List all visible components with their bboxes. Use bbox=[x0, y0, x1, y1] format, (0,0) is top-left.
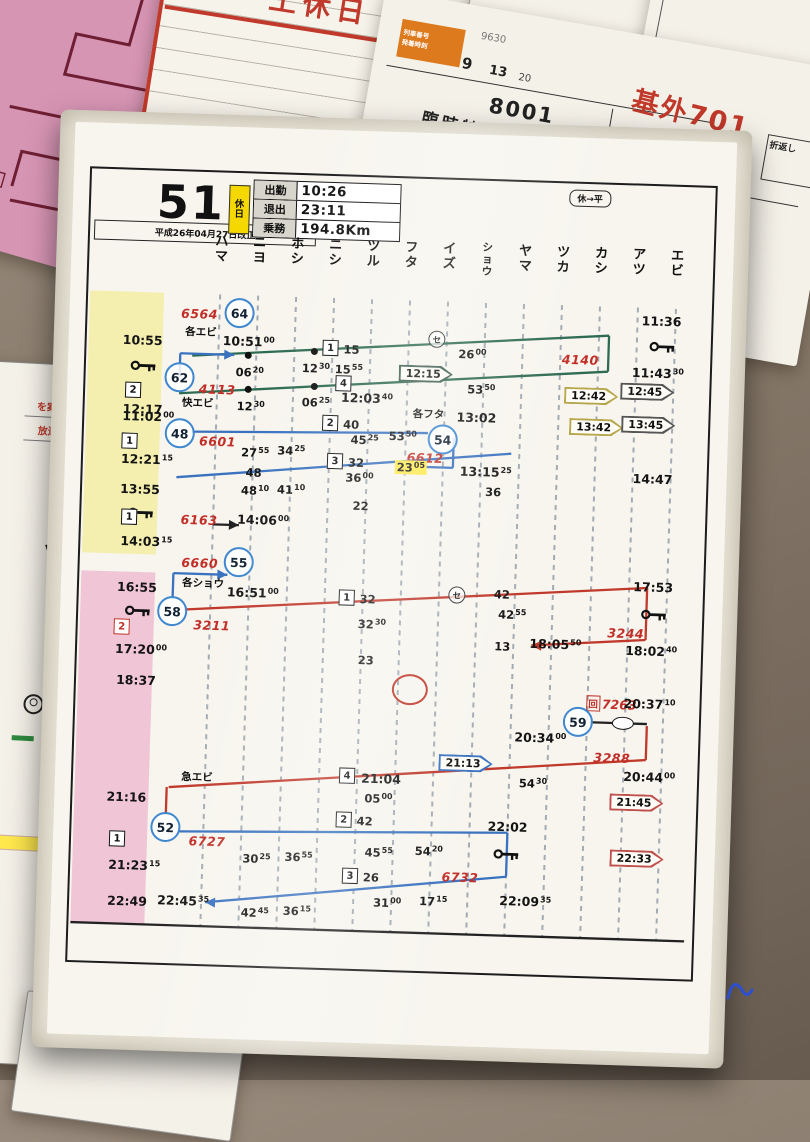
train-number-3211: 3211 bbox=[193, 617, 230, 633]
stop-time: 2600 bbox=[458, 347, 487, 362]
time-label: 12:2115 bbox=[121, 451, 173, 468]
key-icon bbox=[493, 847, 520, 863]
track-number-box-red: 2 bbox=[113, 618, 129, 634]
time-arrow-badge: 13:45 bbox=[621, 416, 676, 435]
track-number-box: 1 bbox=[109, 830, 125, 846]
time-label: 12:0340 bbox=[341, 390, 393, 407]
rinji-head-box: 列車番号 発着時刻 bbox=[396, 19, 466, 68]
rinji-small-no: 9630 bbox=[480, 31, 507, 46]
train-number-6732: 6732 bbox=[441, 869, 478, 885]
stop-time: 1230 bbox=[302, 361, 331, 376]
time-label: 11:4330 bbox=[632, 365, 684, 382]
time-label: 18:37 bbox=[116, 672, 156, 688]
stop-time: 3100 bbox=[373, 896, 402, 911]
stop-time: 22 bbox=[352, 499, 368, 513]
time-label: 12:17 bbox=[122, 401, 162, 417]
train-number-3244: 3244 bbox=[607, 625, 644, 641]
stop-time: 5430 bbox=[519, 776, 548, 791]
time-label: 18:0550 bbox=[529, 636, 581, 653]
stop-time: 42 bbox=[494, 587, 510, 601]
plastic-sleeve: 51 平成26年04月27日改正 休日 出勤 10:26 退出 23:11 乗務… bbox=[31, 109, 752, 1068]
stop-time: 5420 bbox=[414, 844, 443, 859]
stop-time: 36 bbox=[485, 485, 501, 499]
time-label: 22:02 bbox=[487, 819, 527, 835]
rinji-col-c: 20 bbox=[517, 72, 531, 85]
key-icon bbox=[649, 339, 676, 355]
time-label: 22:0935 bbox=[499, 893, 551, 910]
stop-time: 3655 bbox=[284, 850, 313, 865]
time-label: 13:1525 bbox=[460, 464, 512, 481]
train-number-6163: 6163 bbox=[180, 512, 217, 528]
train-number-6727: 6727 bbox=[188, 833, 225, 849]
time-label: 18:0240 bbox=[625, 643, 677, 660]
stop-time: 4255 bbox=[498, 607, 527, 622]
time-label: 20:3400 bbox=[514, 729, 566, 746]
stop-time: 13 bbox=[494, 639, 510, 653]
time-arrow-badge: 21:45 bbox=[609, 793, 664, 812]
stop-time: 5350 bbox=[389, 429, 418, 444]
train-number-6660: 6660 bbox=[181, 555, 218, 571]
track-number-box: 1 bbox=[121, 432, 137, 448]
stop-time: 5350 bbox=[467, 382, 496, 397]
stop-time: 32 bbox=[359, 592, 375, 606]
stop-time: 3615 bbox=[283, 904, 312, 919]
train-type-kaku-sho: 各ショウ bbox=[182, 575, 224, 591]
time-arrow-badge: 12:42 bbox=[564, 387, 619, 406]
track-number-box: 4 bbox=[339, 767, 355, 783]
stop-time: 42 bbox=[356, 814, 372, 828]
highlighted-time-2305: 2305 bbox=[395, 460, 428, 475]
stop-time: 15 bbox=[343, 342, 359, 356]
track-number-box: 1 bbox=[121, 508, 137, 524]
train-type-kyu-ebi: 急エビ bbox=[181, 769, 213, 785]
time-label: 14:0600 bbox=[237, 512, 289, 529]
train-type-kai-ebi: 快エビ bbox=[182, 395, 214, 411]
stop-time: 1230 bbox=[236, 399, 265, 414]
stop-time: 48 bbox=[245, 465, 261, 479]
stop-time: 4245 bbox=[240, 905, 269, 920]
track-number-box: 2 bbox=[125, 382, 141, 398]
time-arrow-badge: 21:13 bbox=[438, 754, 493, 773]
train-type-kaku-ebi: 各エビ bbox=[185, 324, 217, 340]
track-number-box: 1 bbox=[322, 340, 338, 356]
stop-time: 23 bbox=[358, 653, 374, 667]
time-label: 17:53 bbox=[633, 579, 673, 595]
stop-time: 26 bbox=[363, 870, 379, 884]
time-arrow-badge: 22:33 bbox=[609, 849, 664, 868]
time-label: 20:3710 bbox=[623, 696, 675, 713]
key-icon bbox=[130, 358, 157, 374]
time-label: 14:0315 bbox=[120, 533, 172, 550]
time-label: 22:4535 bbox=[157, 892, 209, 909]
stop-time: 4810 bbox=[241, 483, 270, 498]
stop-time: 3600 bbox=[345, 470, 374, 485]
stop-time: 0625 bbox=[302, 395, 331, 410]
train-number-6564: 6564 bbox=[181, 306, 218, 322]
time-label: 21:16 bbox=[106, 789, 146, 805]
train-number-6601: 6601 bbox=[199, 433, 236, 449]
train-type-kaku-futa: 各フタ bbox=[413, 406, 445, 422]
time-arrow-badge: 13:42 bbox=[569, 418, 624, 437]
rinji-note-box: 折返し bbox=[760, 134, 810, 189]
track-number-box: 2 bbox=[322, 415, 338, 431]
stop-time: 4555 bbox=[364, 845, 393, 860]
stop-time: 3230 bbox=[358, 617, 387, 632]
photo-of-train-duty-cards: { "bg_cards": { "dojitsu": {"title": "土休… bbox=[0, 0, 810, 1080]
track-number-box: 3 bbox=[342, 868, 358, 884]
track-number-box: 2 bbox=[335, 811, 351, 827]
time-label: 21:2315 bbox=[108, 857, 160, 874]
stop-time: 1715 bbox=[419, 894, 448, 909]
time-arrow-badge: 12:45 bbox=[620, 383, 675, 402]
stop-time: 2755 bbox=[241, 445, 270, 460]
time-label: 14:47 bbox=[632, 471, 672, 487]
time-label: 20:4400 bbox=[623, 769, 675, 786]
stop-time: 4525 bbox=[350, 433, 379, 448]
stop-time: 32 bbox=[348, 456, 364, 470]
time-label: 13:02 bbox=[456, 409, 496, 425]
train-number-3288: 3288 bbox=[593, 750, 630, 766]
time-label: 16:55 bbox=[117, 579, 157, 595]
left-card-circle-mark bbox=[23, 694, 44, 715]
stop-time: 40 bbox=[343, 417, 359, 431]
blue-pen-mark bbox=[722, 968, 756, 1008]
key-icon bbox=[641, 607, 668, 623]
time-label: 13:55 bbox=[120, 481, 160, 497]
train-number-4140: 4140 bbox=[562, 352, 599, 368]
key-icon bbox=[124, 603, 151, 619]
time-label: 22:49 bbox=[107, 893, 147, 909]
track-number-box: 3 bbox=[327, 453, 343, 469]
time-label: 16:5100 bbox=[227, 584, 279, 601]
time-label: 17:2000 bbox=[115, 641, 167, 658]
rinji-col-b: 13 bbox=[488, 63, 508, 81]
time-label: 11:36 bbox=[641, 313, 681, 329]
stop-time: 0620 bbox=[235, 365, 264, 380]
track-number-box: 1 bbox=[338, 589, 354, 605]
stop-time: 4110 bbox=[277, 482, 306, 497]
time-label: 10:5100 bbox=[223, 333, 275, 350]
time-label: 21:04 bbox=[361, 771, 401, 787]
left-card-green-mark bbox=[12, 735, 34, 741]
duty-schedule-card: 51 平成26年04月27日改正 休日 出勤 10:26 退出 23:11 乗務… bbox=[47, 122, 737, 1054]
rinji-col-a: 9 bbox=[460, 54, 473, 74]
stop-time: 0500 bbox=[364, 791, 393, 806]
time-label: 10:55 bbox=[123, 332, 163, 348]
dojitsu-title: 土休日 bbox=[266, 0, 373, 33]
time-arrow-badge: 12:15 bbox=[399, 365, 454, 384]
stop-time: 3425 bbox=[277, 443, 306, 458]
stop-time: 3025 bbox=[242, 851, 271, 866]
